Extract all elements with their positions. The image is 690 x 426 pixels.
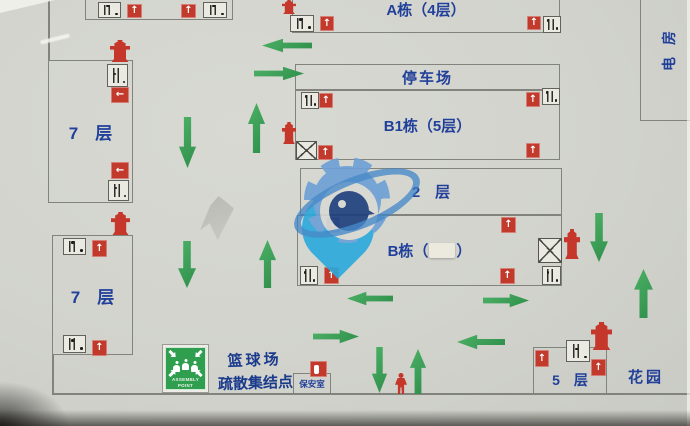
evac-arrow-left (457, 334, 505, 350)
evac-arrow-left (347, 291, 393, 306)
person-icon (395, 373, 407, 394)
up-arrow-glyph: ↑ (529, 95, 537, 105)
elevator-icon (538, 238, 562, 263)
evac-arrow-down (371, 347, 388, 393)
assembly-sign-line2: POINT (166, 383, 205, 388)
assembly-point-label: 篮球场 疏散集结点 (205, 347, 304, 394)
exit-sign-icon: ↑ (501, 217, 516, 233)
stair-icon (107, 64, 128, 87)
up-arrow-glyph: ↑ (327, 271, 335, 281)
stair-icon (542, 266, 561, 285)
fire-extinguisher-sign-icon (310, 361, 327, 377)
photo-vignette (0, 381, 70, 426)
photo-edge-highlight (0, 0, 55, 13)
parking-lot-outline: 停车场 (295, 64, 560, 90)
boundary-line (48, 0, 50, 61)
exit-sign-icon: ↑ (500, 268, 515, 284)
evac-arrow-right (313, 329, 359, 344)
fire-hydrant-icon (564, 229, 580, 259)
smudge-mark (200, 196, 234, 240)
fire-hydrant-icon (111, 212, 130, 235)
building-b-label-prefix: B栋（ (388, 243, 429, 260)
electrical-room-outline: 电房 (640, 0, 690, 121)
fire-hydrant-icon (591, 322, 612, 350)
electrical-room-label: 电房 (659, 19, 679, 71)
inward-arrow-icon (166, 348, 178, 360)
fire-hydrant-icon (110, 40, 130, 62)
up-arrow-glyph: ↑ (321, 148, 329, 158)
boundary-line (52, 355, 54, 395)
evac-arrow-up (633, 269, 654, 318)
stair-icon (98, 2, 121, 18)
up-arrow-glyph: ↑ (538, 354, 546, 364)
up-arrow-glyph: ↑ (329, 220, 337, 230)
exit-sign-icon: ↑ (181, 4, 196, 18)
person-pictogram-icon (182, 359, 189, 370)
evac-arrow-right (483, 293, 529, 308)
up-arrow-glyph: ↑ (95, 343, 103, 353)
evac-arrow-left (262, 38, 312, 53)
building-b1-outline: B1栋（5层） (295, 90, 560, 160)
stair-icon (290, 15, 314, 32)
exit-sign-icon: ↑ (527, 16, 541, 30)
up-arrow-glyph: ↑ (529, 146, 537, 156)
up-arrow-glyph: ↑ (594, 363, 602, 373)
stair-icon (63, 238, 86, 255)
exit-sign-icon: ↑ (318, 145, 333, 160)
exit-left-sign-icon: ← (111, 87, 129, 103)
up-arrow-glyph: ↑ (184, 6, 192, 16)
exit-sign-icon: ↑ (326, 217, 340, 233)
up-arrow-glyph: ↑ (530, 18, 538, 28)
assembly-point-pictogram: ASSEMBLY POINT (165, 347, 206, 390)
evac-arrow-down (178, 117, 197, 168)
assembly-point-sign-text: ASSEMBLY POINT (166, 377, 205, 388)
elevator-icon (296, 141, 317, 160)
person-pictogram-icon (191, 361, 198, 372)
building-b-label-suffix: ） (456, 243, 471, 260)
stair-icon (566, 340, 590, 362)
building-b1-label: B1栋（5层） (384, 115, 472, 136)
exit-sign-icon: ↑ (92, 240, 107, 257)
exit-sign-icon: ↑ (324, 267, 339, 284)
tower-7f-lower-label: 7 层 (71, 283, 114, 308)
floor-2-label: 2 层 (412, 181, 450, 202)
extinguisher-glyph (314, 365, 319, 374)
up-arrow-glyph: ↑ (504, 220, 512, 230)
stair-icon (203, 2, 227, 18)
exit-left-sign-icon: ← (111, 162, 129, 179)
tower-7f-upper-label: 7 层 (69, 119, 112, 144)
up-arrow-glyph: ↑ (503, 271, 511, 281)
evac-arrow-up (409, 349, 427, 394)
stair-icon (300, 266, 318, 285)
evacuation-map-photo: A栋（4层） 停车场 B1栋（5层） 2 层 B栋（） 7 层 7 层 5 层 … (0, 0, 690, 426)
exit-sign-icon: ↑ (526, 143, 540, 158)
label-whiteout-patch (429, 243, 455, 258)
up-arrow-glyph: ↑ (95, 244, 103, 254)
exit-sign-icon: ↑ (127, 4, 142, 18)
up-arrow-glyph: ↑ (322, 96, 330, 106)
parking-lot-label: 停车场 (402, 67, 453, 88)
evac-arrow-up (247, 103, 266, 153)
stair-icon (542, 88, 560, 105)
garden-label: 花园 (628, 366, 664, 387)
exit-sign-icon: ↑ (591, 359, 606, 376)
fire-hydrant-icon (282, 122, 296, 144)
exit-sign-icon: ↑ (526, 92, 540, 107)
evac-arrow-up (258, 240, 277, 288)
scratch-mark (40, 33, 70, 44)
assembly-label-line1: 篮球场 (205, 347, 304, 371)
exit-sign-icon: ↑ (319, 93, 333, 108)
photo-vignette (0, 410, 690, 426)
stair-icon (108, 180, 129, 201)
evac-arrow-down (177, 241, 197, 288)
assembly-label-line2: 疏散集结点 (206, 370, 305, 394)
exit-sign-icon: ↑ (92, 340, 107, 356)
stair-icon (63, 335, 86, 353)
up-arrow-glyph: ↑ (130, 6, 138, 16)
exit-sign-icon: ↑ (535, 350, 549, 367)
building-b-label: B栋（） (388, 240, 472, 261)
person-pictogram-icon (173, 361, 180, 372)
assembly-point-sign: ASSEMBLY POINT (162, 344, 209, 393)
evac-arrow-down (589, 213, 609, 262)
exit-sign-icon: ↑ (320, 16, 334, 31)
inward-arrow-icon (192, 348, 204, 360)
left-arrow-glyph: ← (116, 90, 124, 100)
stair-icon (543, 16, 561, 33)
stair-icon (301, 92, 319, 109)
left-arrow-glyph: ← (116, 166, 124, 176)
up-arrow-glyph: ↑ (323, 19, 331, 29)
floor-2-outline: 2 层 (300, 168, 562, 215)
